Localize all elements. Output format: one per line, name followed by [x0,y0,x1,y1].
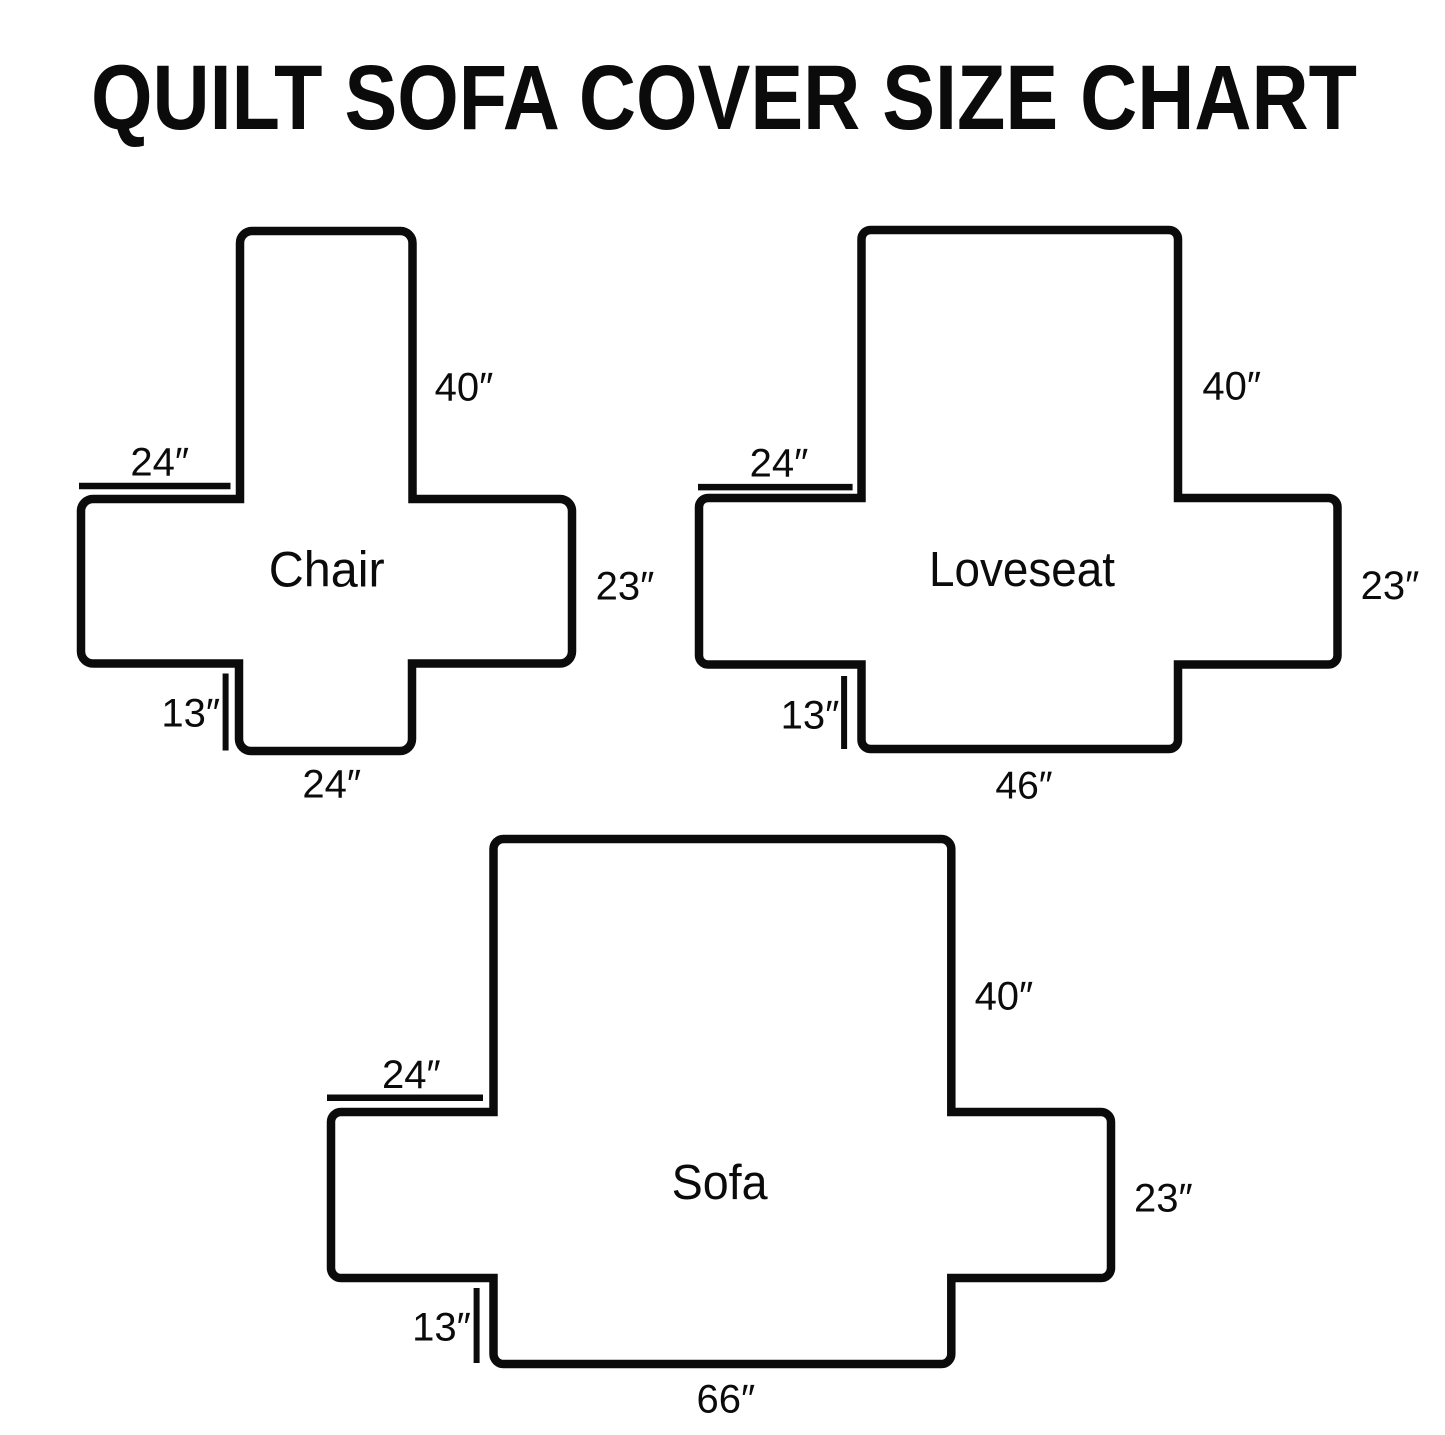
svg-text:13″: 13″ [412,1306,471,1350]
svg-text:46″: 46″ [995,765,1052,808]
svg-text:QUILT SOFA COVER SIZE CHART: QUILT SOFA COVER SIZE CHART [91,47,1357,149]
svg-text:23″: 23″ [1134,1177,1193,1221]
svg-text:40″: 40″ [1202,365,1261,409]
svg-text:13″: 13″ [781,694,840,738]
svg-text:66″: 66″ [696,1378,755,1422]
svg-text:24″: 24″ [750,442,809,486]
svg-text:40″: 40″ [435,366,494,410]
svg-text:Sofa: Sofa [672,1156,769,1210]
svg-text:Chair: Chair [269,542,385,598]
svg-text:13″: 13″ [161,692,220,736]
svg-text:Loveseat: Loveseat [929,543,1115,597]
svg-text:23″: 23″ [1361,564,1420,608]
svg-text:24″: 24″ [130,441,189,485]
svg-text:23″: 23″ [596,565,655,609]
svg-text:24″: 24″ [302,763,361,807]
svg-text:24″: 24″ [382,1053,441,1097]
svg-text:40″: 40″ [975,975,1034,1019]
